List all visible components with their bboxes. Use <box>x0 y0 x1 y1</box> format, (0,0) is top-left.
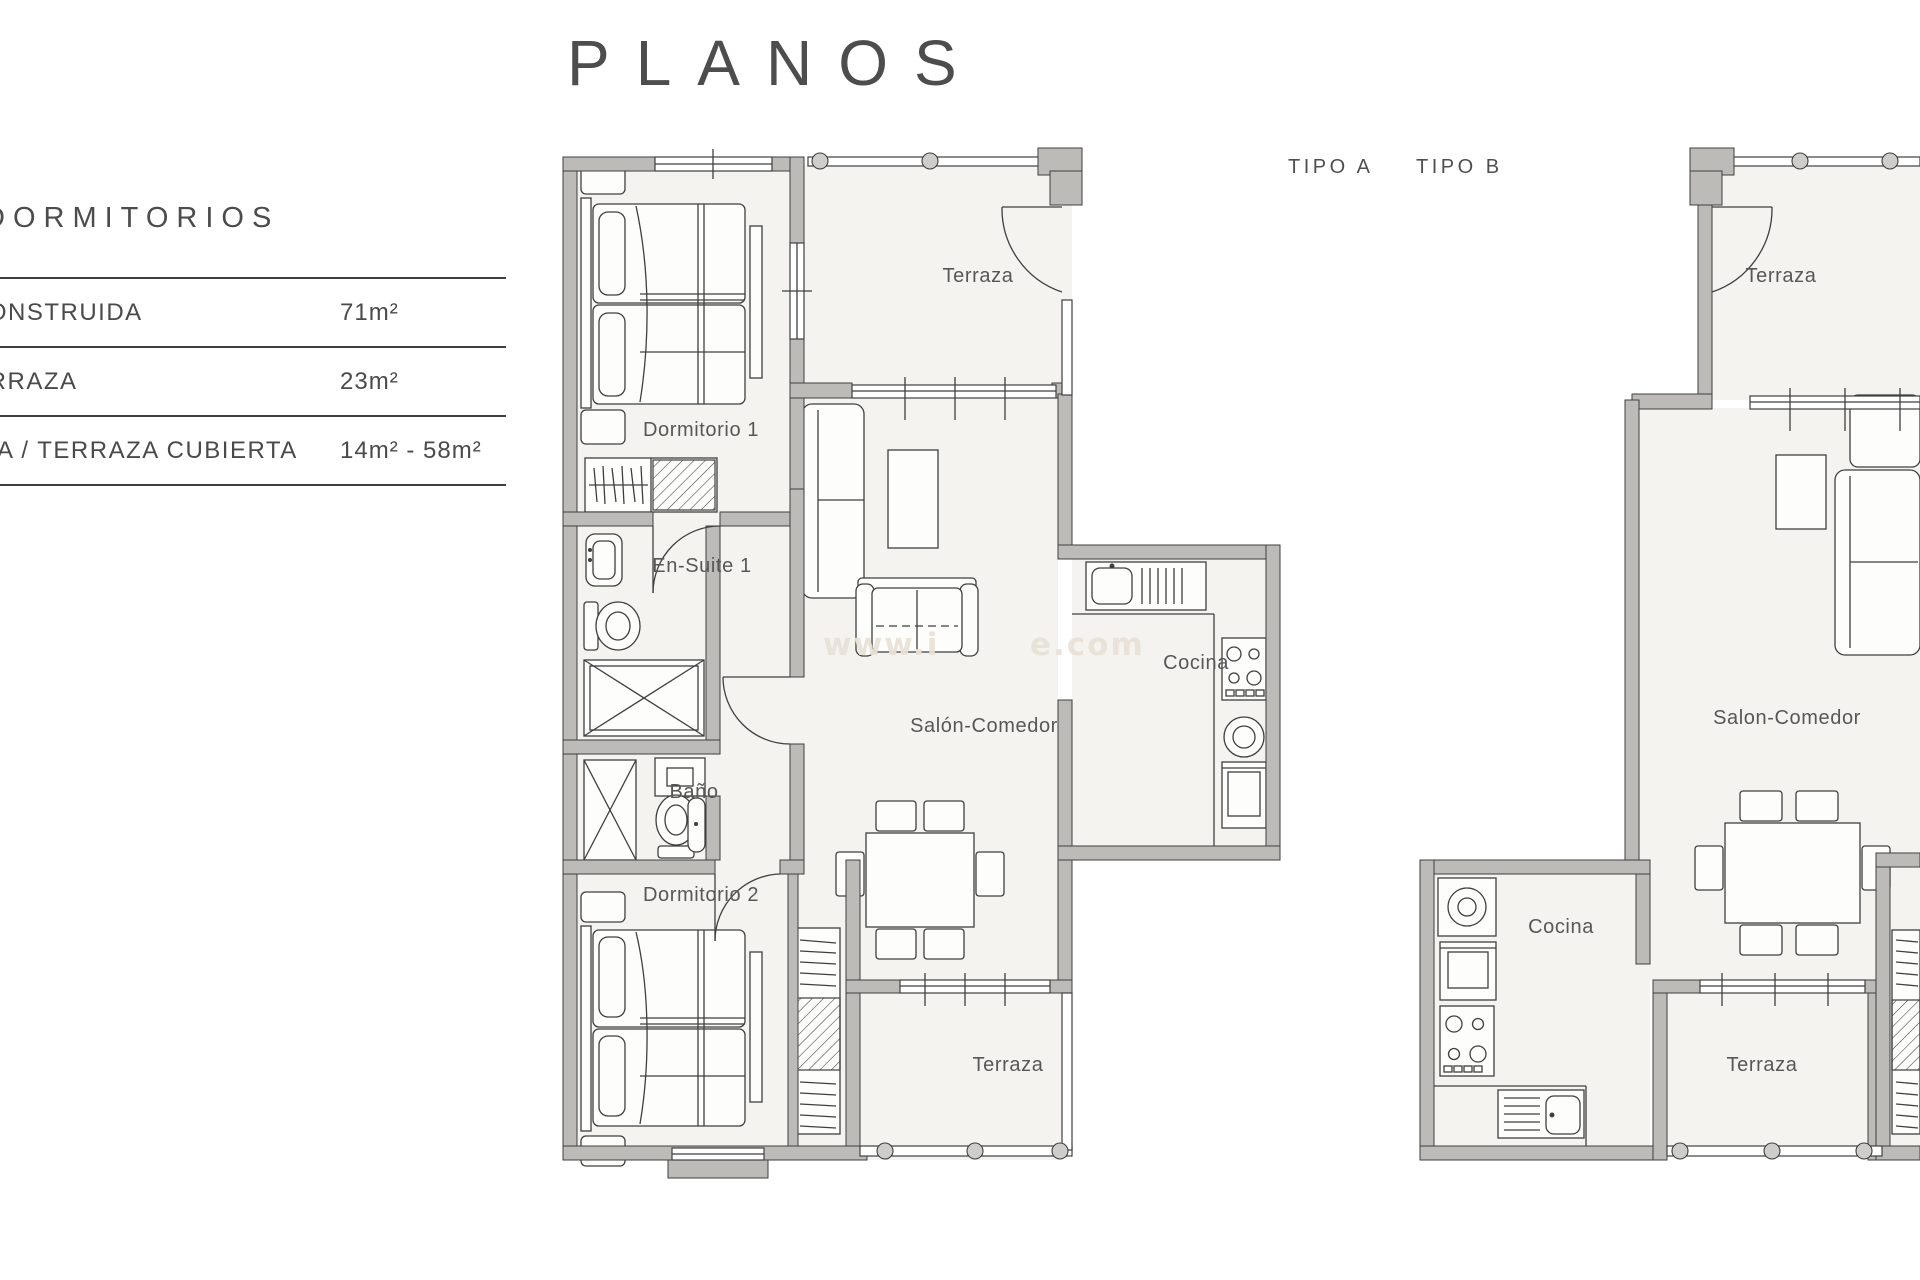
kitchen-sink-icon <box>1086 562 1206 610</box>
room-label-terraza-top-a: Terraza <box>943 265 1014 287</box>
room-label-salon-b: Salon-Comedor <box>1713 707 1861 729</box>
stove-icon <box>1440 1006 1494 1076</box>
dining-table <box>866 833 974 927</box>
floor-plan-tipo-a: Terraza Dormitorio 1 En-Suite 1 Baño Dor… <box>563 148 1280 1178</box>
room-label-terraza-top-b: Terraza <box>1746 265 1817 287</box>
floor-plans-svg: Terraza Dormitorio 1 En-Suite 1 Baño Dor… <box>0 0 1920 1280</box>
room-label-terraza-bottom-b: Terraza <box>1727 1054 1798 1076</box>
watermark-suffix: e.com <box>1030 627 1145 663</box>
oven-icon <box>1222 762 1266 828</box>
floor-plan-tipo-b: Terraza Salon-Comedor Cocina Terraza <box>1420 148 1920 1160</box>
hob-icon <box>1224 717 1264 757</box>
room-label-ensuite-1: En-Suite 1 <box>652 555 751 577</box>
kitchen-sink-icon <box>1498 1090 1584 1138</box>
washing-machine-icon <box>1438 878 1496 936</box>
shower-icon <box>584 760 636 860</box>
room-label-salon-a: Salón-Comedor <box>910 715 1058 737</box>
dining-table <box>1725 823 1860 923</box>
room-label-dormitorio-1: Dormitorio 1 <box>643 419 759 441</box>
sofa-vertical <box>802 404 864 598</box>
closet-dormitorio-2 <box>796 928 840 1134</box>
wardrobe-cut <box>1892 930 1920 1134</box>
wardrobe-dormitorio-1 <box>585 458 717 512</box>
window <box>672 1148 764 1160</box>
shower-icon <box>584 660 704 736</box>
room-label-cocina-b: Cocina <box>1528 916 1594 938</box>
bed-dormitorio-2 <box>581 892 762 1166</box>
watermark-prefix: www.i <box>823 627 939 663</box>
coffee-table <box>1776 455 1826 529</box>
room-label-terraza-bottom-a: Terraza <box>973 1054 1044 1076</box>
room-label-dormitorio-2: Dormitorio 2 <box>643 884 759 906</box>
room-label-cocina-a: Cocina <box>1163 652 1229 674</box>
floorplan-page: PLANOS DORMITORIOS CONSTRUIDA 71m² TERRA… <box>0 0 1920 1280</box>
coffee-table <box>888 450 938 548</box>
room-label-bano: Baño <box>669 781 718 803</box>
oven-icon <box>1440 942 1496 1000</box>
